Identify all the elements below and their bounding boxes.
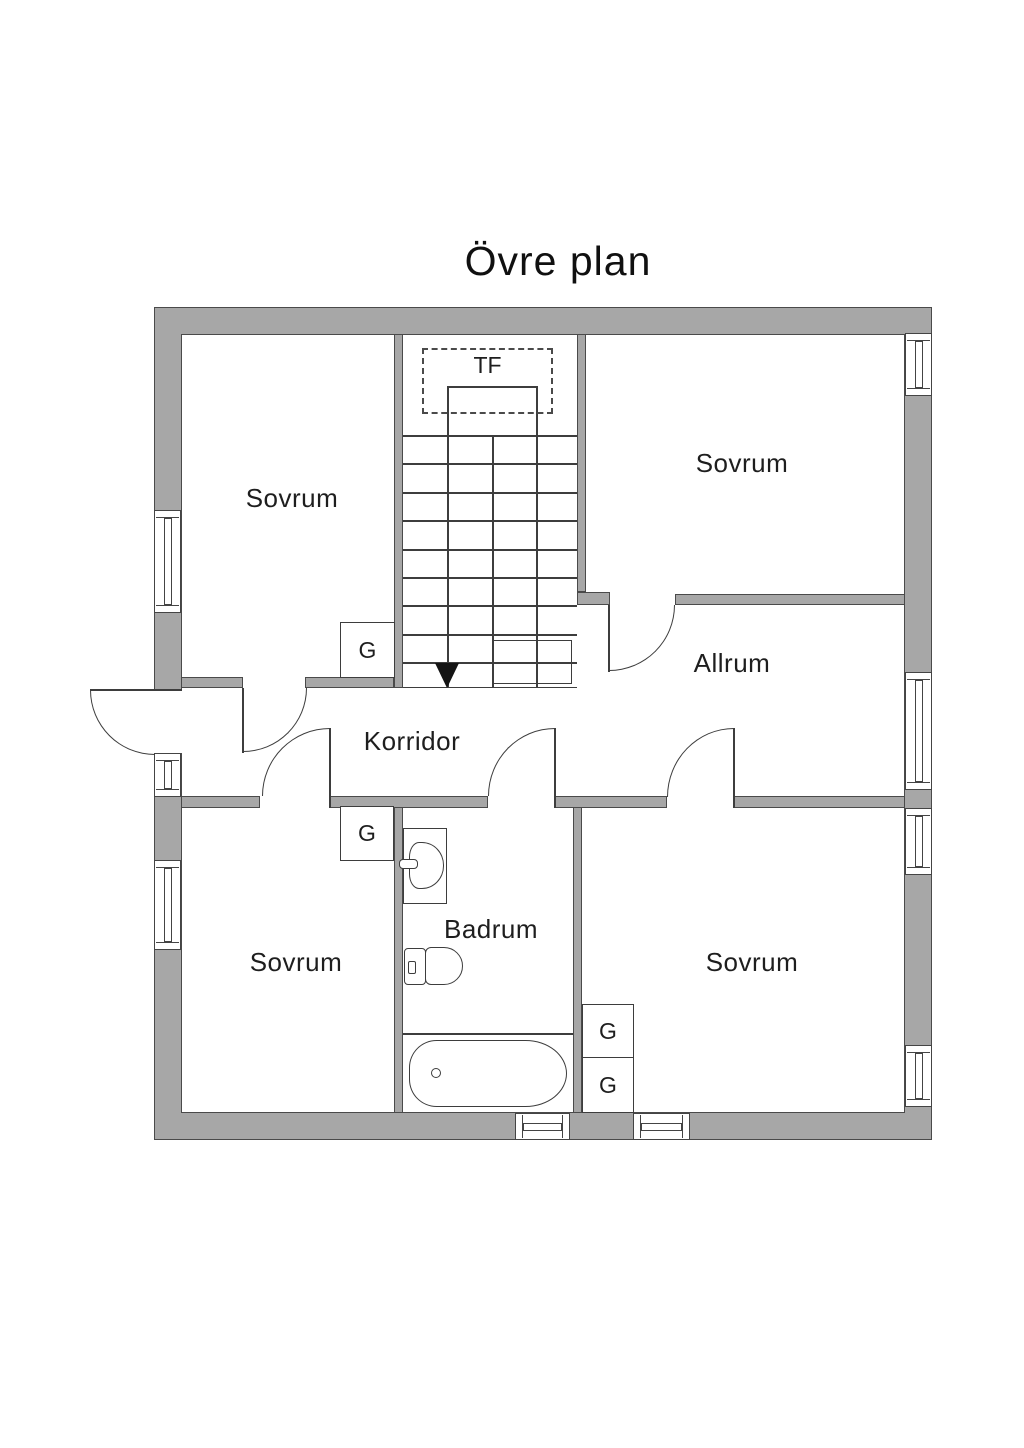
bathtub-drain [431,1068,441,1078]
window [905,1045,932,1107]
bathtub-deck-edge [403,1033,573,1035]
wall-corridor-top-a [181,677,243,688]
room-label-badrum: Badrum [444,914,538,945]
window [905,333,932,396]
attic-window-label: TF [473,352,501,379]
wardrobe: G [340,622,395,678]
wall-badrum-left [394,807,403,1113]
window [154,753,181,797]
wall-landing-stub [577,592,610,605]
room-label-sovrum-top-right: Sovrum [696,448,789,479]
wardrobe-label: G [359,637,377,664]
attic-window-outline: TF [422,348,553,414]
wall-corridor-top-b [305,677,394,688]
stair-landing [492,640,572,684]
wall-badrum-right [573,807,582,1113]
wardrobe-label: G [599,1018,617,1045]
door-opening [153,690,182,753]
room-label-korridor: Korridor [364,726,460,757]
sink-tap [399,859,418,869]
wall-corridor-bottom-c [555,796,667,808]
wall-allrum-divider [675,594,905,605]
wall-corridor-bottom-a [181,796,260,808]
floor-plan: Övre plan TF [0,0,1024,1448]
window [515,1113,570,1140]
wardrobe-label: G [599,1072,617,1099]
room-label-sovrum-bottom-left: Sovrum [250,947,343,978]
window [905,672,932,790]
toilet-bowl [425,947,463,985]
wardrobe: G [582,1004,634,1059]
door-swing-arc [90,690,155,755]
room-label-allrum: Allrum [694,648,771,679]
window [154,510,181,613]
wardrobe-label: G [358,820,376,847]
toilet-flush-button [408,961,416,974]
wardrobe: G [582,1057,634,1113]
wardrobe: G [340,806,394,861]
window [905,808,932,875]
page-title: Övre plan [465,238,652,285]
room-label-sovrum-bottom-right: Sovrum [706,947,799,978]
window [633,1113,690,1140]
window [154,860,181,950]
room-label-sovrum-top-left: Sovrum [246,483,339,514]
wall-corridor-bottom-d [733,796,905,808]
staircase: TF [403,334,577,688]
stairs-down-arrow-icon [435,663,459,688]
wall-stairs-right [577,334,586,592]
wall-stairs-left [394,334,403,688]
